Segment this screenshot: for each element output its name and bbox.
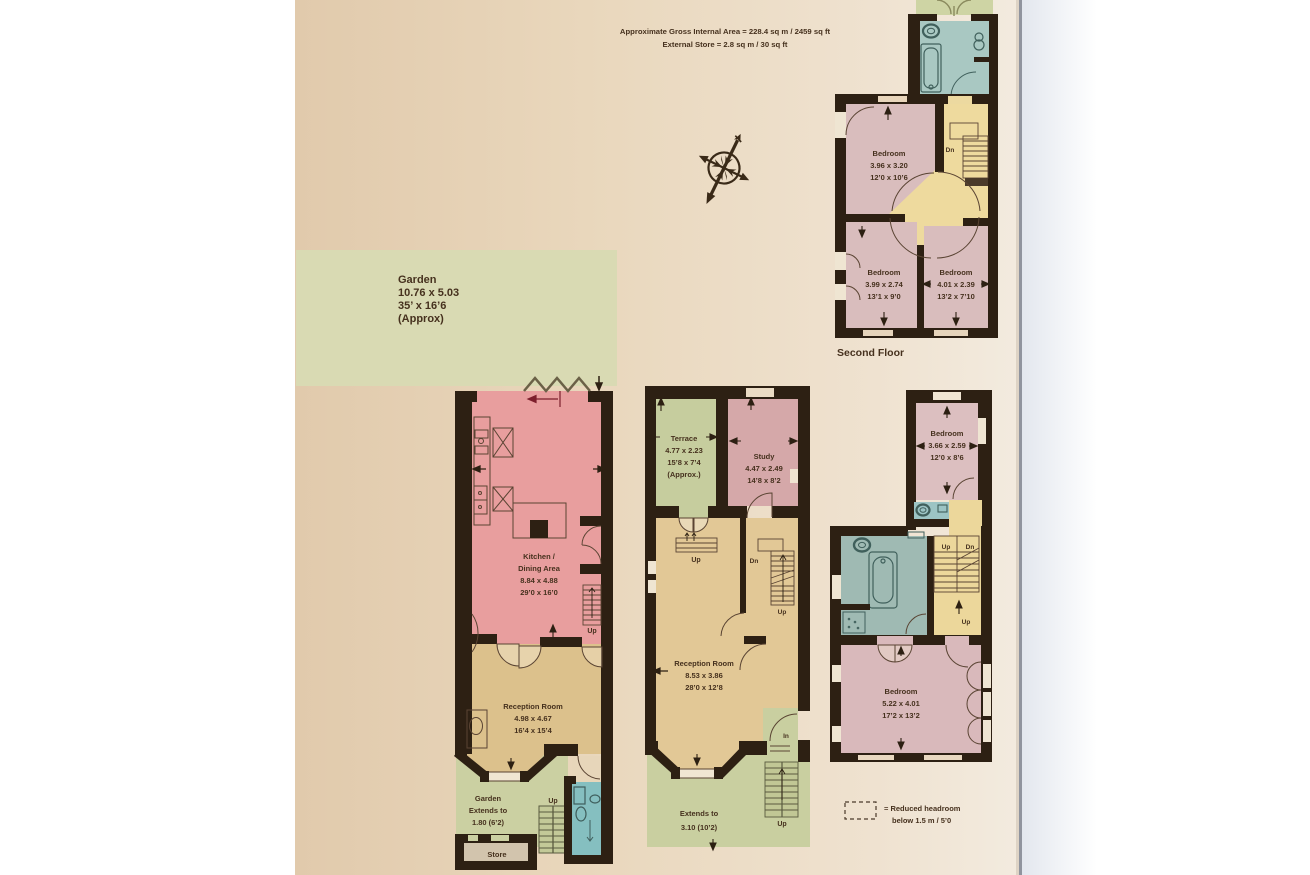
svg-text:14’8 x 8’2: 14’8 x 8’2: [747, 476, 780, 485]
svg-text:Bedroom: Bedroom: [885, 687, 918, 696]
svg-text:Dn: Dn: [966, 544, 975, 551]
svg-text:Second Floor: Second Floor: [837, 347, 904, 359]
svg-text:12’0 x 8’6: 12’0 x 8’6: [930, 453, 963, 462]
svg-text:Store: Store: [487, 850, 506, 859]
svg-text:Up: Up: [691, 557, 700, 564]
svg-text:Study: Study: [754, 452, 776, 461]
svg-text:3.66 x 2.59: 3.66 x 2.59: [928, 441, 966, 450]
svg-text:3.99 x 2.74: 3.99 x 2.74: [865, 280, 903, 289]
svg-text:4.01 x 2.39: 4.01 x 2.39: [937, 280, 975, 289]
svg-text:5.22 x 4.01: 5.22 x 4.01: [882, 699, 920, 708]
svg-text:Bedroom: Bedroom: [873, 149, 906, 158]
svg-text:15’8 x 7’4: 15’8 x 7’4: [667, 458, 701, 467]
svg-text:below 1.5 m / 5’0: below 1.5 m / 5’0: [892, 816, 951, 825]
svg-text:= Reduced headroom: = Reduced headroom: [884, 804, 961, 813]
svg-text:Dn: Dn: [750, 558, 759, 565]
svg-text:4.98 x 4.67: 4.98 x 4.67: [514, 714, 552, 723]
svg-text:Up: Up: [548, 798, 557, 805]
svg-text:4.47 x 2.49: 4.47 x 2.49: [745, 464, 783, 473]
svg-text:13’1 x 9’0: 13’1 x 9’0: [867, 292, 900, 301]
svg-text:Kitchen /: Kitchen /: [523, 552, 556, 561]
svg-text:10.76 x 5.03: 10.76 x 5.03: [398, 287, 459, 299]
svg-text:Up: Up: [942, 544, 951, 551]
svg-text:External Store = 2.8 sq m / 30: External Store = 2.8 sq m / 30 sq ft: [663, 40, 788, 49]
svg-text:28’0 x 12’8: 28’0 x 12’8: [685, 683, 723, 692]
svg-text:Reception Room: Reception Room: [674, 659, 734, 668]
svg-text:17’2 x 13’2: 17’2 x 13’2: [882, 711, 920, 720]
svg-text:Up: Up: [778, 609, 787, 616]
svg-text:4.77 x 2.23: 4.77 x 2.23: [665, 446, 703, 455]
svg-text:(Approx.): (Approx.): [667, 470, 701, 479]
svg-text:Up: Up: [587, 628, 596, 635]
svg-text:Extends to: Extends to: [680, 809, 719, 818]
svg-text:Garden: Garden: [398, 274, 437, 286]
svg-text:Reception Room: Reception Room: [503, 702, 563, 711]
svg-text:35’ x 16’6: 35’ x 16’6: [398, 300, 446, 312]
svg-text:Dining Area: Dining Area: [518, 564, 561, 573]
svg-text:In: In: [783, 733, 789, 740]
svg-text:Bedroom: Bedroom: [868, 268, 901, 277]
svg-text:1.80 (6’2): 1.80 (6’2): [472, 818, 505, 827]
svg-text:Extends to: Extends to: [469, 806, 508, 815]
svg-text:8.53 x 3.86: 8.53 x 3.86: [685, 671, 723, 680]
svg-text:13’2 x 7’10: 13’2 x 7’10: [937, 292, 975, 301]
svg-text:Approximate Gross Internal Are: Approximate Gross Internal Area = 228.4 …: [620, 27, 831, 36]
svg-text:Up: Up: [962, 619, 971, 626]
svg-text:3.96 x 3.20: 3.96 x 3.20: [870, 161, 908, 170]
svg-text:29’0 x 16’0: 29’0 x 16’0: [520, 588, 558, 597]
svg-text:Terrace: Terrace: [671, 434, 698, 443]
svg-text:12’0 x 10’6: 12’0 x 10’6: [870, 173, 908, 182]
svg-text:3.10 (10’2): 3.10 (10’2): [681, 823, 718, 832]
svg-text:(Approx): (Approx): [398, 313, 444, 325]
svg-text:Garden: Garden: [475, 794, 502, 803]
svg-text:16’4 x 15’4: 16’4 x 15’4: [514, 726, 552, 735]
svg-text:8.84 x 4.88: 8.84 x 4.88: [520, 576, 558, 585]
svg-text:Up: Up: [777, 821, 786, 828]
svg-text:Bedroom: Bedroom: [931, 429, 964, 438]
svg-text:Dn: Dn: [946, 147, 955, 154]
svg-text:Bedroom: Bedroom: [940, 268, 973, 277]
